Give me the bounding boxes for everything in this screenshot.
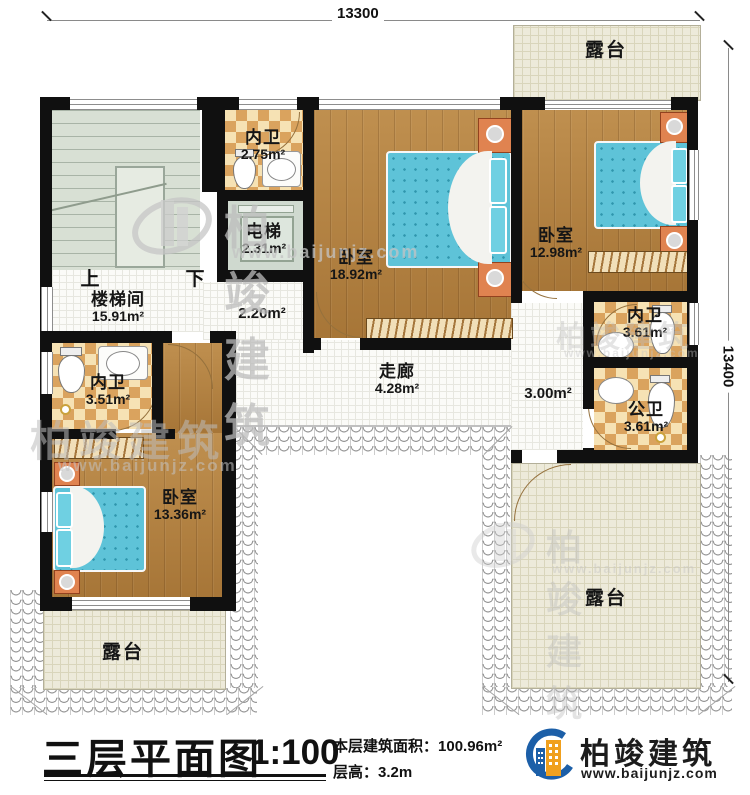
window — [319, 99, 500, 110]
roof-band — [230, 427, 510, 455]
wardrobe — [588, 251, 689, 273]
window — [239, 99, 297, 110]
bed-pillow — [671, 148, 688, 184]
hall-right-floor — [511, 303, 583, 450]
dimension-top-value: 13300 — [332, 5, 384, 22]
roof-strip — [482, 455, 510, 688]
label-terrace-bottom-right: 露台 — [585, 588, 627, 609]
label-bedroom-right: 卧室12.98m² — [530, 226, 582, 261]
plan-scale: 1:100 — [250, 733, 340, 773]
floor-area-label: 本层建筑面积： — [333, 738, 438, 755]
label-stair-down: 下 — [185, 264, 204, 291]
bed-pillow — [671, 185, 688, 223]
label-elevator: 电梯2.31m² — [242, 222, 286, 257]
toilet-tank — [650, 375, 670, 383]
window — [70, 99, 197, 110]
label-hall-right-area: 3.00m² — [524, 386, 572, 403]
label-bath-top: 内卫2.75m² — [241, 128, 285, 163]
roof-band — [10, 688, 257, 715]
brand-url: www.baijunjz.com — [581, 765, 718, 781]
wardrobe — [54, 437, 144, 459]
label-stairwell: 楼梯间15.91m² — [91, 290, 145, 325]
floor-height-value: 3.2m — [378, 764, 412, 781]
floor-height-row: 层高：3.2m — [333, 760, 502, 786]
window — [41, 492, 53, 532]
label-hall-upper-area: 2.20m² — [238, 306, 286, 323]
bed-pillow — [489, 158, 507, 204]
elevator-door — [238, 205, 294, 213]
title-underline — [44, 780, 326, 781]
wardrobe — [366, 318, 513, 339]
nightstand — [478, 262, 512, 297]
stair-landing — [115, 166, 165, 268]
toilet-tank — [60, 347, 82, 356]
window — [41, 352, 53, 394]
label-terrace-bottom-left: 露台 — [102, 642, 144, 663]
nightstand — [54, 462, 80, 486]
door-knob — [60, 404, 71, 415]
dimension-right-value: 13400 — [719, 341, 736, 393]
window — [41, 287, 53, 331]
label-bath-public: 公卫3.61m² — [624, 400, 668, 435]
floorplan-canvas: 13300 13400 — [0, 0, 750, 795]
terrace-top-right — [513, 25, 701, 101]
label-stair-up: 上 — [80, 264, 99, 291]
label-corridor: 走廊4.28m² — [375, 362, 419, 397]
label-bath-left: 内卫3.51m² — [86, 373, 130, 408]
label-bedroom-center: 卧室18.92m² — [330, 248, 382, 283]
nightstand — [54, 570, 80, 594]
terrace-slider — [72, 600, 190, 610]
label-terrace-top-right: 露台 — [585, 40, 627, 61]
label-bath-right: 内卫3.61m² — [623, 306, 667, 341]
nightstand — [478, 118, 512, 153]
title-underline — [44, 774, 326, 777]
nightstand — [660, 112, 689, 143]
brand-logo-icon — [524, 728, 574, 788]
bed-pillow — [489, 206, 507, 254]
window — [689, 303, 699, 345]
roof-band — [482, 687, 732, 715]
plan-info: 本层建筑面积：100.96m² 层高：3.2m — [333, 734, 502, 785]
label-bedroom-bottom: 卧室13.36m² — [154, 488, 206, 523]
floor-area-value: 100.96m² — [438, 738, 502, 755]
corridor-edge — [236, 425, 511, 427]
floor-height-label: 层高： — [333, 764, 378, 781]
bed-pillow — [56, 492, 73, 528]
floor-area-row: 本层建筑面积：100.96m² — [333, 734, 502, 760]
bed-pillow — [56, 529, 73, 567]
window — [689, 150, 699, 220]
terrace-slider — [545, 100, 671, 109]
